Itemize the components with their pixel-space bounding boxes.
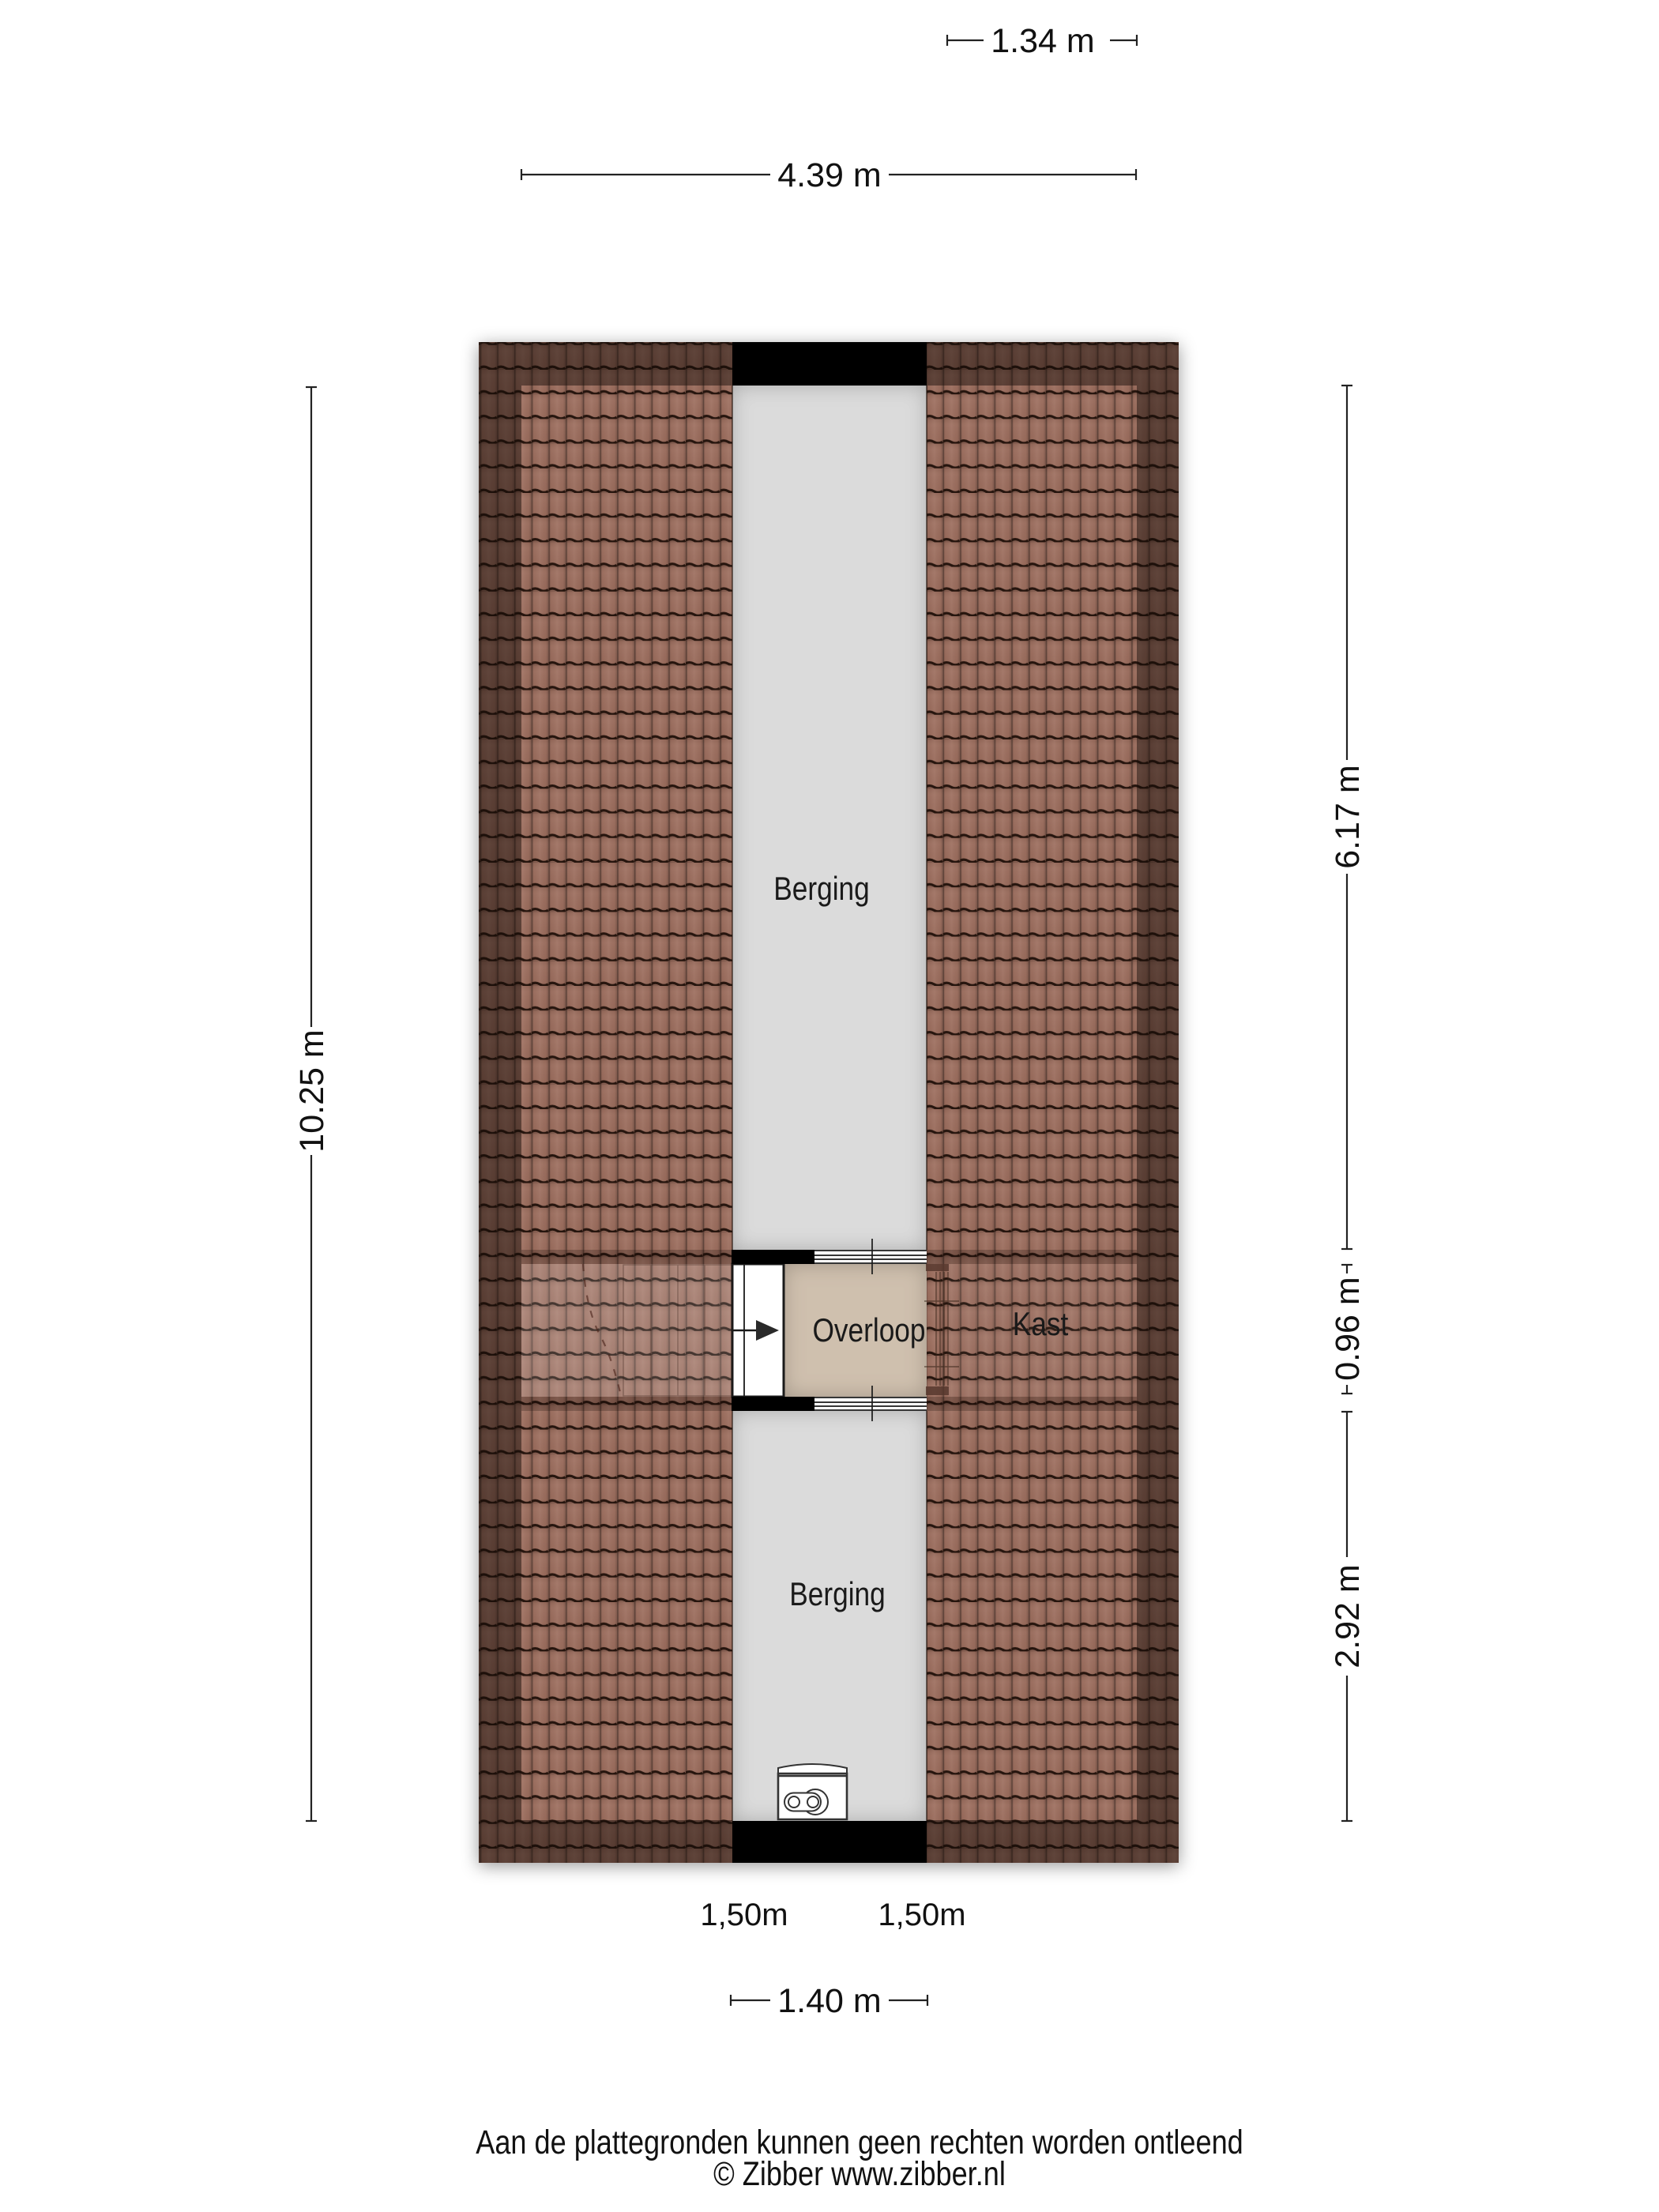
svg-text:4.39 m: 4.39 m	[777, 156, 881, 194]
svg-text:1,50m: 1,50m	[700, 1898, 788, 1932]
svg-text:© Zibber www.zibber.nl: © Zibber www.zibber.nl	[713, 2155, 1006, 2193]
svg-text:Overloop: Overloop	[812, 1312, 925, 1349]
svg-text:Berging: Berging	[789, 1576, 886, 1613]
svg-text:1.40 m: 1.40 m	[777, 1982, 881, 2020]
svg-text:2.92 m: 2.92 m	[1329, 1564, 1367, 1668]
svg-text:Berging: Berging	[773, 871, 870, 908]
svg-text:10.25 m: 10.25 m	[293, 1029, 331, 1152]
svg-text:0.96 m: 0.96 m	[1329, 1277, 1367, 1380]
svg-text:1.34 m: 1.34 m	[991, 22, 1094, 60]
svg-text:6.17 m: 6.17 m	[1329, 765, 1367, 868]
svg-text:1,50m: 1,50m	[878, 1898, 965, 1932]
svg-text:Kast: Kast	[1013, 1306, 1069, 1343]
